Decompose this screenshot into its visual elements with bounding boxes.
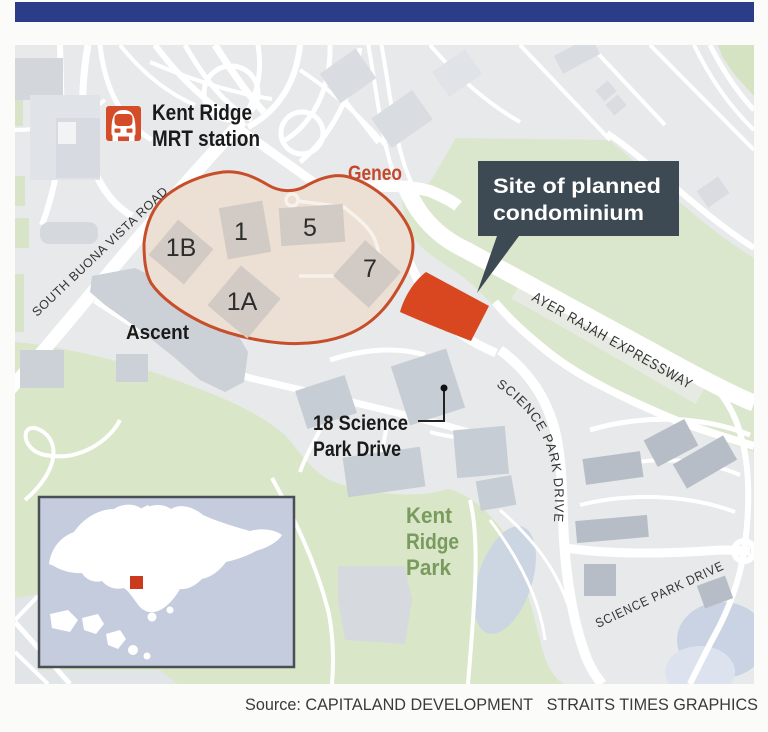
svg-text:MRT station: MRT station — [152, 126, 260, 151]
svg-text:1: 1 — [234, 218, 248, 246]
svg-text:7: 7 — [363, 255, 377, 283]
svg-text:18 Science: 18 Science — [313, 412, 408, 435]
svg-text:Kent: Kent — [406, 503, 453, 528]
svg-text:Park Drive: Park Drive — [313, 438, 401, 461]
svg-text:Ridge: Ridge — [406, 529, 459, 554]
svg-text:Park: Park — [406, 555, 452, 580]
svg-text:Source: CAPITALAND DEVELOPMENT: Source: CAPITALAND DEVELOPMENT STRAITS T… — [245, 695, 758, 714]
svg-text:1A: 1A — [227, 288, 258, 316]
svg-text:Geneo: Geneo — [348, 162, 402, 185]
svg-text:5: 5 — [303, 214, 317, 242]
svg-text:Ascent: Ascent — [126, 322, 189, 344]
svg-text:Kent Ridge: Kent Ridge — [152, 100, 252, 125]
svg-text:condominium: condominium — [493, 202, 644, 225]
svg-text:Site of planned: Site of planned — [493, 175, 661, 198]
svg-text:1B: 1B — [166, 234, 197, 262]
